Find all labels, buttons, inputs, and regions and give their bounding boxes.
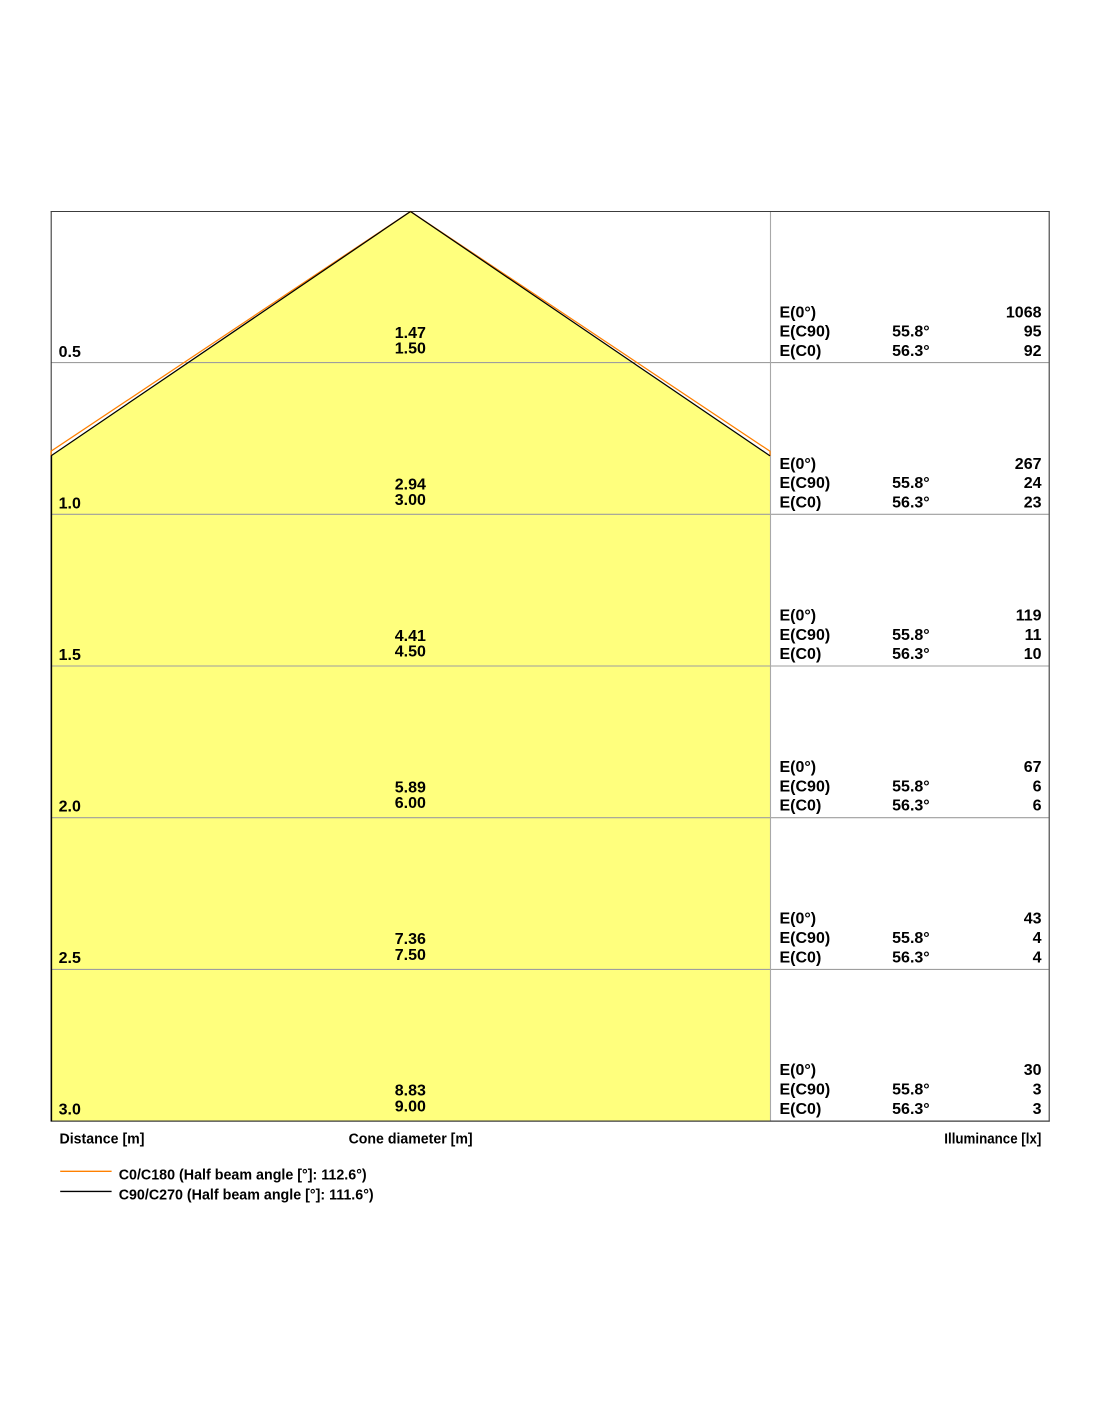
svg-text:2.94: 2.94 bbox=[395, 476, 426, 493]
svg-text:E(C0): E(C0) bbox=[780, 1101, 822, 1118]
svg-text:1.50: 1.50 bbox=[395, 341, 426, 358]
svg-text:3: 3 bbox=[1033, 1101, 1042, 1118]
svg-text:23: 23 bbox=[1024, 495, 1042, 512]
svg-text:6.00: 6.00 bbox=[395, 795, 426, 812]
svg-text:1.47: 1.47 bbox=[395, 325, 426, 342]
svg-text:4: 4 bbox=[1033, 930, 1042, 947]
svg-text:10: 10 bbox=[1024, 646, 1042, 663]
svg-text:92: 92 bbox=[1024, 343, 1042, 360]
svg-text:E(C90): E(C90) bbox=[780, 324, 831, 341]
svg-text:11: 11 bbox=[1025, 627, 1042, 644]
svg-text:56.3°: 56.3° bbox=[892, 798, 930, 815]
svg-text:95: 95 bbox=[1024, 324, 1042, 341]
svg-text:4: 4 bbox=[1033, 949, 1042, 966]
svg-text:E(0°): E(0°) bbox=[780, 759, 817, 776]
svg-text:56.3°: 56.3° bbox=[892, 495, 930, 512]
svg-text:55.8°: 55.8° bbox=[892, 627, 930, 644]
svg-text:6: 6 bbox=[1033, 778, 1042, 795]
svg-text:4.50: 4.50 bbox=[395, 644, 426, 661]
svg-text:E(C90): E(C90) bbox=[780, 1081, 831, 1098]
svg-text:55.8°: 55.8° bbox=[892, 1081, 930, 1098]
svg-text:E(0°): E(0°) bbox=[780, 1062, 817, 1079]
svg-text:E(C90): E(C90) bbox=[780, 475, 831, 492]
svg-text:9.00: 9.00 bbox=[395, 1098, 426, 1115]
svg-text:E(C90): E(C90) bbox=[780, 778, 831, 795]
svg-text:1.0: 1.0 bbox=[59, 496, 81, 513]
svg-text:3.00: 3.00 bbox=[395, 492, 426, 509]
svg-text:55.8°: 55.8° bbox=[892, 930, 930, 947]
svg-text:E(C0): E(C0) bbox=[780, 949, 822, 966]
svg-text:24: 24 bbox=[1024, 475, 1042, 492]
svg-text:3: 3 bbox=[1033, 1081, 1042, 1098]
svg-text:56.3°: 56.3° bbox=[892, 1101, 930, 1118]
svg-text:E(C0): E(C0) bbox=[780, 646, 822, 663]
svg-text:67: 67 bbox=[1024, 759, 1042, 776]
svg-text:267: 267 bbox=[1015, 456, 1042, 473]
svg-text:0.5: 0.5 bbox=[59, 344, 81, 361]
svg-text:1.5: 1.5 bbox=[59, 647, 81, 664]
svg-text:4.41: 4.41 bbox=[395, 628, 426, 645]
svg-text:5.89: 5.89 bbox=[395, 779, 426, 796]
svg-text:7.36: 7.36 bbox=[395, 931, 426, 948]
svg-text:E(C0): E(C0) bbox=[780, 495, 822, 512]
svg-text:119: 119 bbox=[1016, 607, 1042, 624]
svg-text:56.3°: 56.3° bbox=[892, 343, 930, 360]
svg-text:Distance [m]: Distance [m] bbox=[60, 1132, 145, 1148]
svg-text:56.3°: 56.3° bbox=[892, 949, 930, 966]
svg-text:E(C90): E(C90) bbox=[780, 930, 831, 947]
svg-text:7.50: 7.50 bbox=[395, 947, 426, 964]
svg-text:56.3°: 56.3° bbox=[892, 646, 930, 663]
svg-text:55.8°: 55.8° bbox=[892, 778, 930, 795]
svg-text:E(0°): E(0°) bbox=[780, 910, 817, 927]
svg-text:8.83: 8.83 bbox=[395, 1083, 426, 1100]
svg-text:30: 30 bbox=[1024, 1062, 1042, 1079]
svg-text:E(C90): E(C90) bbox=[780, 627, 831, 644]
svg-text:1068: 1068 bbox=[1006, 304, 1042, 321]
svg-text:2.5: 2.5 bbox=[59, 950, 81, 967]
svg-text:55.8°: 55.8° bbox=[892, 475, 930, 492]
svg-text:C0/C180 (Half beam angle [°]:: C0/C180 (Half beam angle [°]: 112.6°) bbox=[119, 1167, 367, 1183]
svg-text:E(0°): E(0°) bbox=[780, 456, 817, 473]
svg-text:C90/C270 (Half beam angle [°]:: C90/C270 (Half beam angle [°]: 111.6°) bbox=[119, 1188, 374, 1204]
svg-text:Illuminance [lx]: Illuminance [lx] bbox=[944, 1132, 1041, 1148]
svg-text:Cone diameter [m]: Cone diameter [m] bbox=[349, 1132, 473, 1148]
svg-text:55.8°: 55.8° bbox=[892, 324, 930, 341]
svg-text:3.0: 3.0 bbox=[59, 1102, 81, 1119]
svg-text:E(C0): E(C0) bbox=[780, 343, 822, 360]
svg-text:E(0°): E(0°) bbox=[780, 304, 817, 321]
svg-text:43: 43 bbox=[1024, 910, 1042, 927]
svg-text:2.0: 2.0 bbox=[59, 799, 81, 816]
svg-text:6: 6 bbox=[1033, 798, 1042, 815]
svg-text:E(0°): E(0°) bbox=[780, 607, 817, 624]
svg-text:E(C0): E(C0) bbox=[780, 798, 822, 815]
